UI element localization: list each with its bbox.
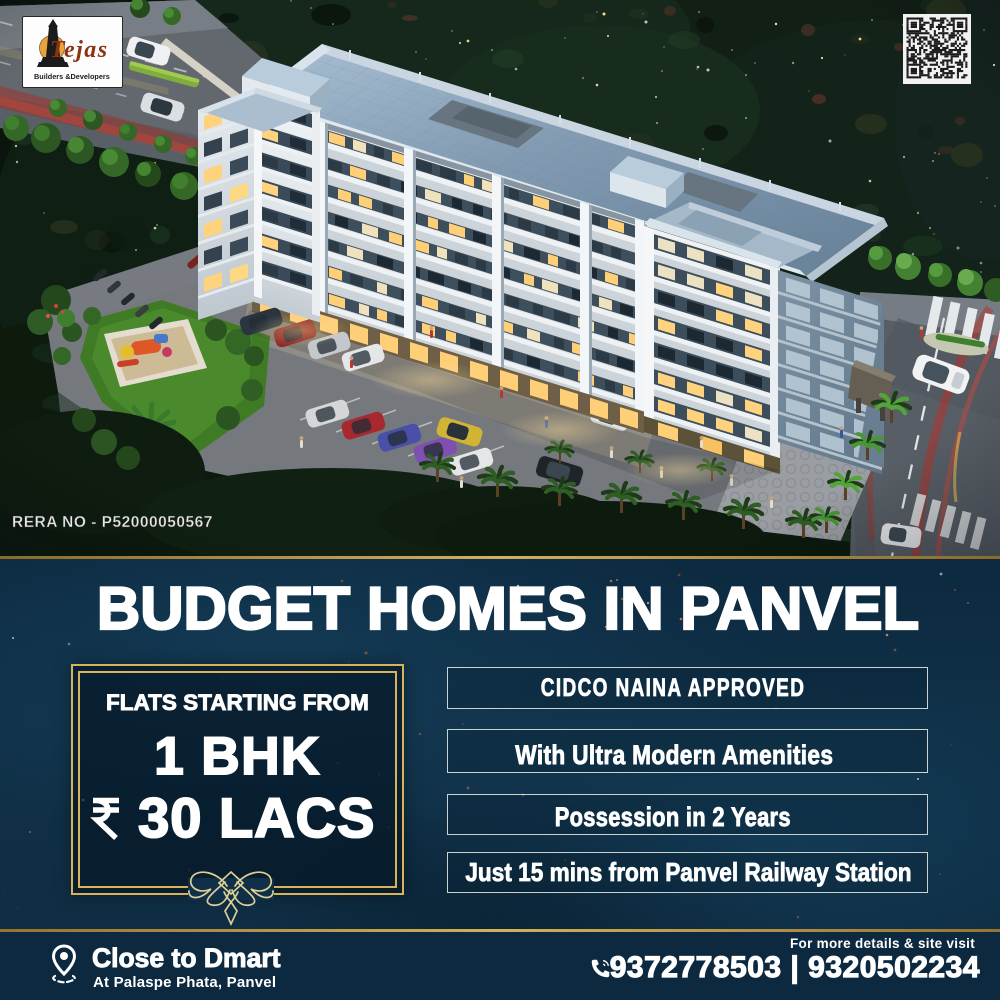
svg-text:Tejas: Tejas — [50, 37, 109, 63]
svg-text:RERA NO - P52000050567: RERA NO - P52000050567 — [12, 514, 213, 531]
svg-text:Builders &Developers: Builders &Developers — [34, 72, 110, 81]
